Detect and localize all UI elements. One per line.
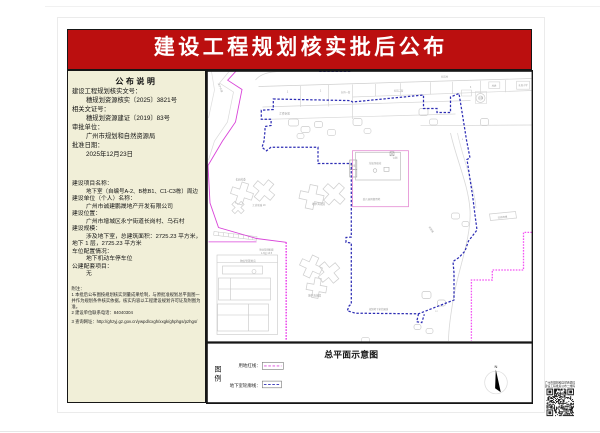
- svg-text:地中海花园: 地中海花园: [312, 202, 325, 206]
- svg-text:例: 例: [214, 374, 221, 383]
- svg-text:公厕: 公厕: [392, 156, 397, 160]
- svg-text:N: N: [494, 364, 497, 369]
- svg-text:地下室轮廓线：: 地下室轮廓线：: [229, 382, 260, 389]
- svg-text:汇侨新城 19: 汇侨新城 19: [252, 203, 266, 207]
- svg-text:广州市规划和自然资源局: 广州市规划和自然资源局: [545, 381, 575, 385]
- svg-text:建设工程批后公布二维码: 建设工程批后公布二维码: [545, 384, 575, 388]
- svg-text:总平面示意图: 总平面示意图: [324, 348, 378, 359]
- svg-text:汇侨新城: 汇侨新城: [279, 112, 290, 116]
- svg-text:长岗一街: 长岗一街: [340, 90, 350, 94]
- svg-text:图: 图: [214, 366, 221, 374]
- svg-text:垃圾压缩站: 垃圾压缩站: [368, 161, 381, 165]
- svg-text:物业管理用房: 物业管理用房: [240, 259, 256, 263]
- svg-text:长岗二街: 长岗二街: [393, 89, 403, 93]
- svg-text:规划地下室范围线: 规划地下室范围线: [368, 307, 388, 311]
- svg-text:长岗村: 长岗村: [440, 75, 448, 79]
- svg-text:1-3层 13.5: 1-3层 13.5: [260, 251, 272, 255]
- svg-text:物业管理配套: 物业管理配套: [259, 248, 274, 252]
- svg-text:用地红线：: 用地红线：: [238, 362, 260, 369]
- svg-text:地中海花园: 地中海花园: [308, 294, 321, 298]
- svg-text:幼儿园预留用地: 幼儿园预留用地: [362, 197, 380, 201]
- svg-text:长岗村委: 长岗村委: [235, 178, 246, 182]
